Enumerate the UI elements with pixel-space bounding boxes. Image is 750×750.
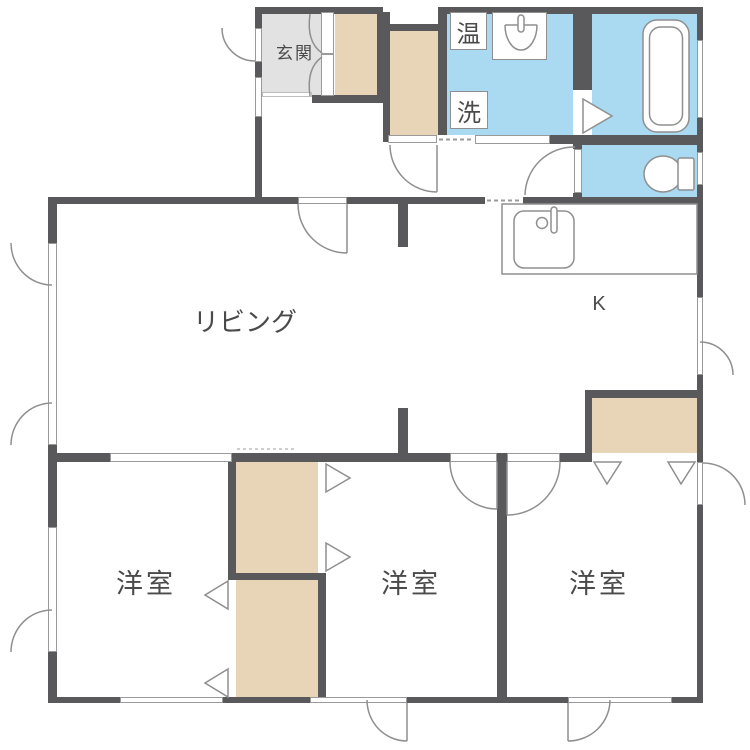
living-casement-window-arc-icon <box>11 243 52 285</box>
living-door-swing-arc-icon <box>298 204 347 253</box>
bedroom-right-casement-window-arc-icon <box>568 700 610 741</box>
genkan-closet-door-arc-icon <box>309 14 322 53</box>
washbasin-faucet-icon <box>518 15 524 32</box>
kitchen-faucet-icon <box>537 218 548 229</box>
genkan-closet-door-arc-icon <box>309 57 322 96</box>
bedroom-right-exterior-door-swing-arc-icon <box>703 463 745 505</box>
kitchen-closet-folding-door-icon <box>668 462 695 484</box>
front-door-swing-arc-icon <box>222 28 255 61</box>
living-casement-window-arc-icon <box>11 403 52 445</box>
toilet-door-swing-arc-icon <box>525 147 575 195</box>
kitchen-casement-window-arc-icon <box>700 342 733 375</box>
closet-lower-folding-door-icon <box>205 581 228 609</box>
floor-plan: 温 洗 玄関 リビング K 洋室 洋室 洋室 <box>0 0 750 750</box>
closet-upper-folding-door-icon <box>326 543 350 571</box>
hall-closet-door-swing-arc-icon <box>390 145 437 192</box>
closet-upper-folding-door-icon <box>326 464 350 492</box>
toilet-icon <box>644 156 682 192</box>
bedroom-right-door-swing-arc-icon <box>507 462 560 515</box>
toilet-tank-icon <box>678 158 694 190</box>
bedroom-left-casement-window-arc-icon <box>11 610 52 652</box>
bedroom-middle-door-swing-arc-icon <box>450 462 497 509</box>
kitchen-faucet-stem-icon <box>551 207 557 233</box>
bathroom-folding-door-icon <box>583 99 612 133</box>
bedroom-middle-casement-window-arc-icon <box>367 700 407 741</box>
symbols-overlay <box>0 0 750 750</box>
kitchen-closet-folding-door-icon <box>594 462 621 484</box>
closet-lower-folding-door-icon <box>205 669 228 697</box>
kitchen-counter <box>502 204 697 274</box>
